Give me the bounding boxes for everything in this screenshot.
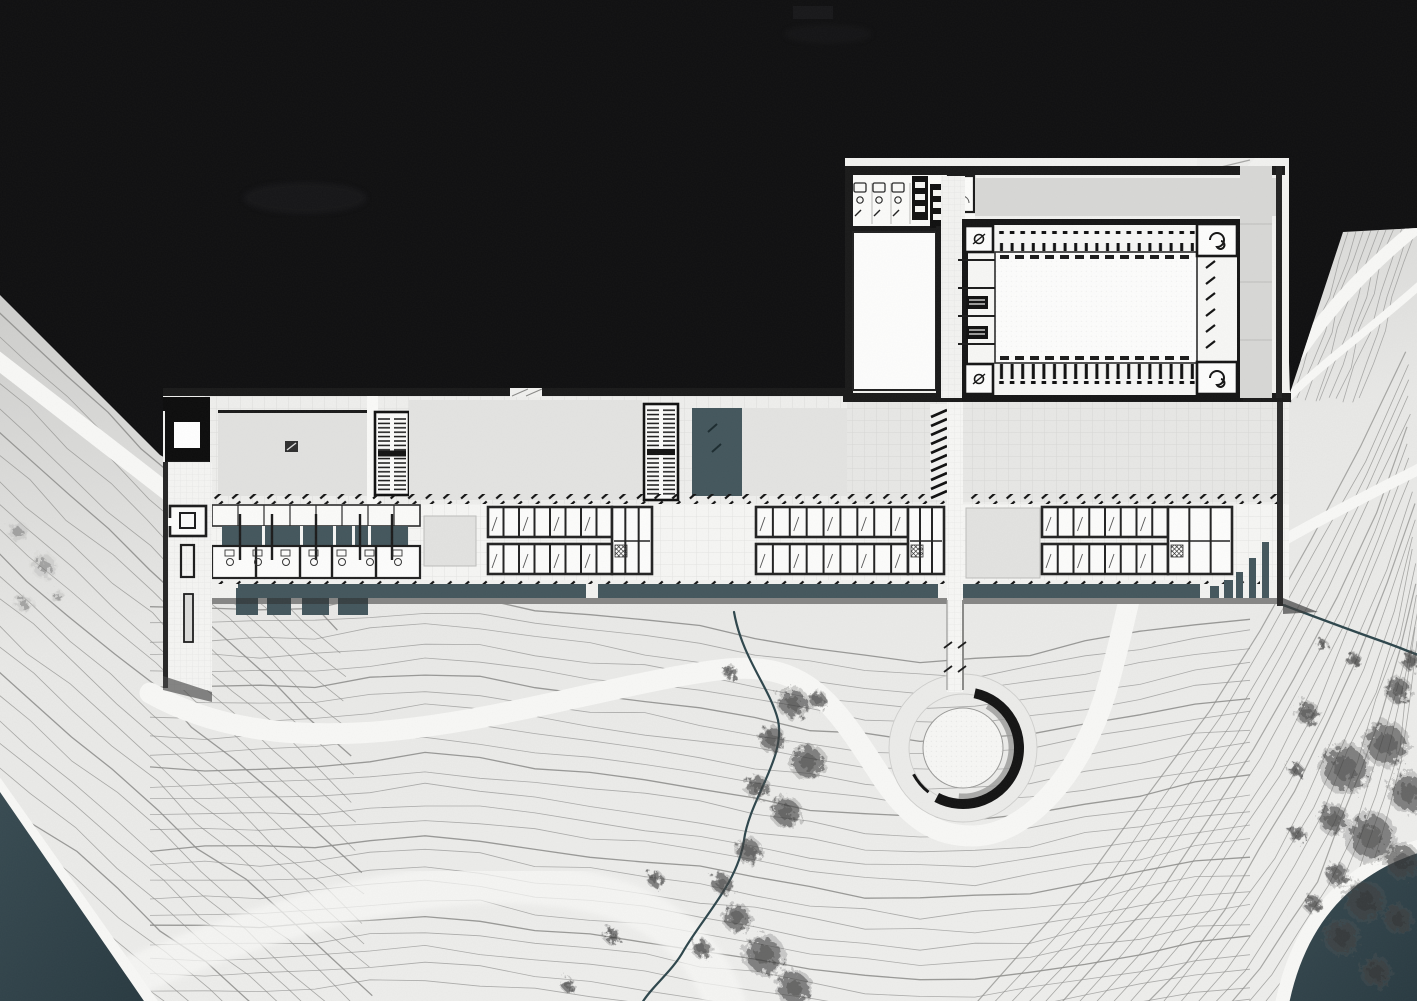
architectural-site-plan	[0, 0, 1417, 1001]
paper-grain-overlay	[0, 0, 1417, 1001]
site-plan-canvas	[0, 0, 1417, 1001]
